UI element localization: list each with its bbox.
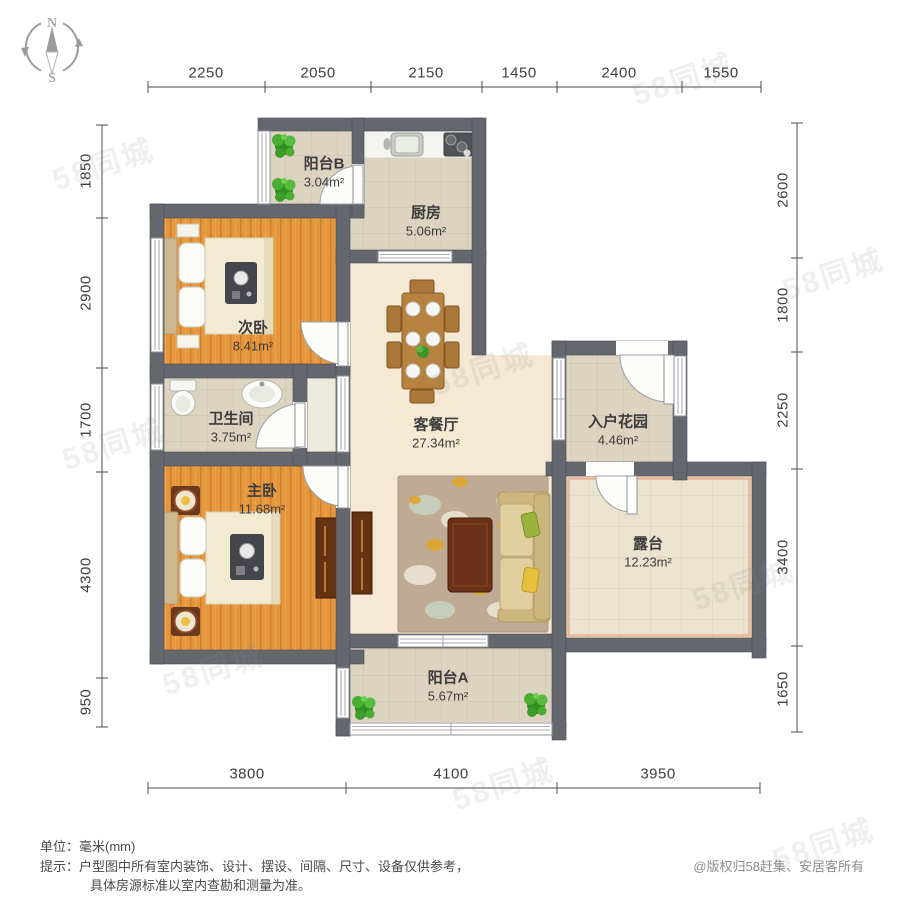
room-label-second-bedroom: 次卧 8.41m² — [233, 320, 273, 355]
dim-right-2: 1800 — [775, 287, 792, 322]
dim-bottom-3: 3950 — [640, 766, 675, 783]
dim-left-5: 950 — [78, 689, 95, 716]
room-label-balcony-b: 阳台B 3.04m² — [304, 156, 345, 191]
coffee-table — [448, 518, 492, 592]
dimension-line-right — [791, 123, 803, 732]
window-kitchen-bottom — [378, 251, 452, 262]
dim-top-6: 1550 — [703, 65, 738, 82]
dim-right-5: 1650 — [775, 671, 792, 706]
window-bathroom-left — [151, 384, 163, 450]
room-label-bathroom: 卫生间 3.75m² — [208, 411, 253, 446]
room-name: 露台 — [624, 536, 672, 555]
room-label-kitchen: 厨房 5.06m² — [406, 205, 446, 240]
room-name: 厨房 — [406, 205, 446, 224]
room-label-living-dining: 客餐厅 27.34m² — [412, 417, 460, 452]
dim-left-3: 1700 — [78, 402, 95, 437]
master-wardrobe — [316, 518, 336, 598]
dimension-line-left — [96, 125, 108, 727]
room-name: 次卧 — [233, 320, 273, 339]
dim-right-3: 2250 — [775, 392, 792, 427]
living-cabinet — [352, 512, 372, 594]
room-label-balcony-a: 阳台A 5.67m² — [428, 670, 469, 705]
room-label-terrace: 露台 12.23m² — [624, 536, 672, 571]
dimension-line-bottom — [148, 782, 760, 794]
room-name: 主卧 — [239, 483, 286, 502]
dim-left-1: 1850 — [78, 153, 95, 188]
bathroom-sink-icon — [242, 380, 282, 408]
room-area: 4.46m² — [588, 432, 648, 448]
room-name: 客餐厅 — [412, 417, 460, 436]
room-area: 12.23m² — [624, 554, 672, 570]
dim-left-4: 4300 — [78, 557, 95, 592]
dim-right-4: 3400 — [775, 539, 792, 574]
dim-bottom-1: 3800 — [229, 766, 264, 783]
footer-tip-line1: 提示：户型图中所有室内装饰、设计、摆设、间隔、尺寸、设备仅供参考， — [40, 856, 469, 875]
kitchen-counter — [364, 131, 472, 158]
window-balcony-a-bottom — [350, 723, 552, 735]
dim-right-1: 2600 — [775, 172, 792, 207]
window-garden-right — [674, 356, 686, 416]
room-area: 3.04m² — [304, 174, 345, 190]
window-balcony-a-left — [337, 668, 349, 718]
compass: N S — [15, 10, 90, 85]
dim-top-2: 2050 — [300, 65, 335, 82]
dimension-line-top — [148, 81, 761, 93]
compass-south-label: S — [48, 71, 56, 85]
dim-top-5: 2400 — [601, 65, 636, 82]
room-area: 27.34m² — [412, 435, 460, 451]
footer-copyright: @版权归58赶集、安居客所有 — [693, 856, 864, 875]
dim-left-2: 2900 — [78, 275, 95, 310]
dim-bottom-2: 4100 — [433, 766, 468, 783]
room-name: 阳台A — [428, 670, 469, 689]
window-second-bedroom-left — [151, 238, 163, 352]
floorplan-canvas: N S 58同城 58同城 58同城 58同城 58同城 58同城 58同城 5… — [0, 0, 900, 900]
room-name: 卫生间 — [208, 411, 253, 430]
room-label-entry-garden: 入户花园 4.46m² — [588, 414, 648, 449]
dim-top-1: 2250 — [188, 65, 223, 82]
room-area: 8.41m² — [233, 338, 273, 354]
window-balcony-b-left — [258, 131, 270, 204]
dim-top-4: 1450 — [501, 65, 536, 82]
compass-north-label: N — [47, 16, 57, 31]
window-living-balcony-a — [398, 635, 488, 647]
room-area: 3.75m² — [208, 429, 253, 445]
room-name: 阳台B — [304, 156, 345, 175]
footer-unit-line: 单位：毫米(mm) — [40, 836, 135, 855]
room-name: 入户花园 — [588, 414, 648, 433]
dim-top-3: 2150 — [408, 65, 443, 82]
window-bathroom-hall — [337, 376, 349, 452]
shaft-floor — [307, 378, 336, 452]
toilet-icon — [170, 380, 196, 416]
window-garden-left — [553, 358, 565, 440]
room-area: 5.06m² — [406, 223, 446, 239]
room-area: 5.67m² — [428, 688, 469, 704]
footer-tip-line2: 具体房源标准以室内查勘和测量为准。 — [90, 875, 311, 894]
room-area: 11.68m² — [239, 501, 286, 517]
room-label-master-bedroom: 主卧 11.68m² — [239, 483, 286, 518]
